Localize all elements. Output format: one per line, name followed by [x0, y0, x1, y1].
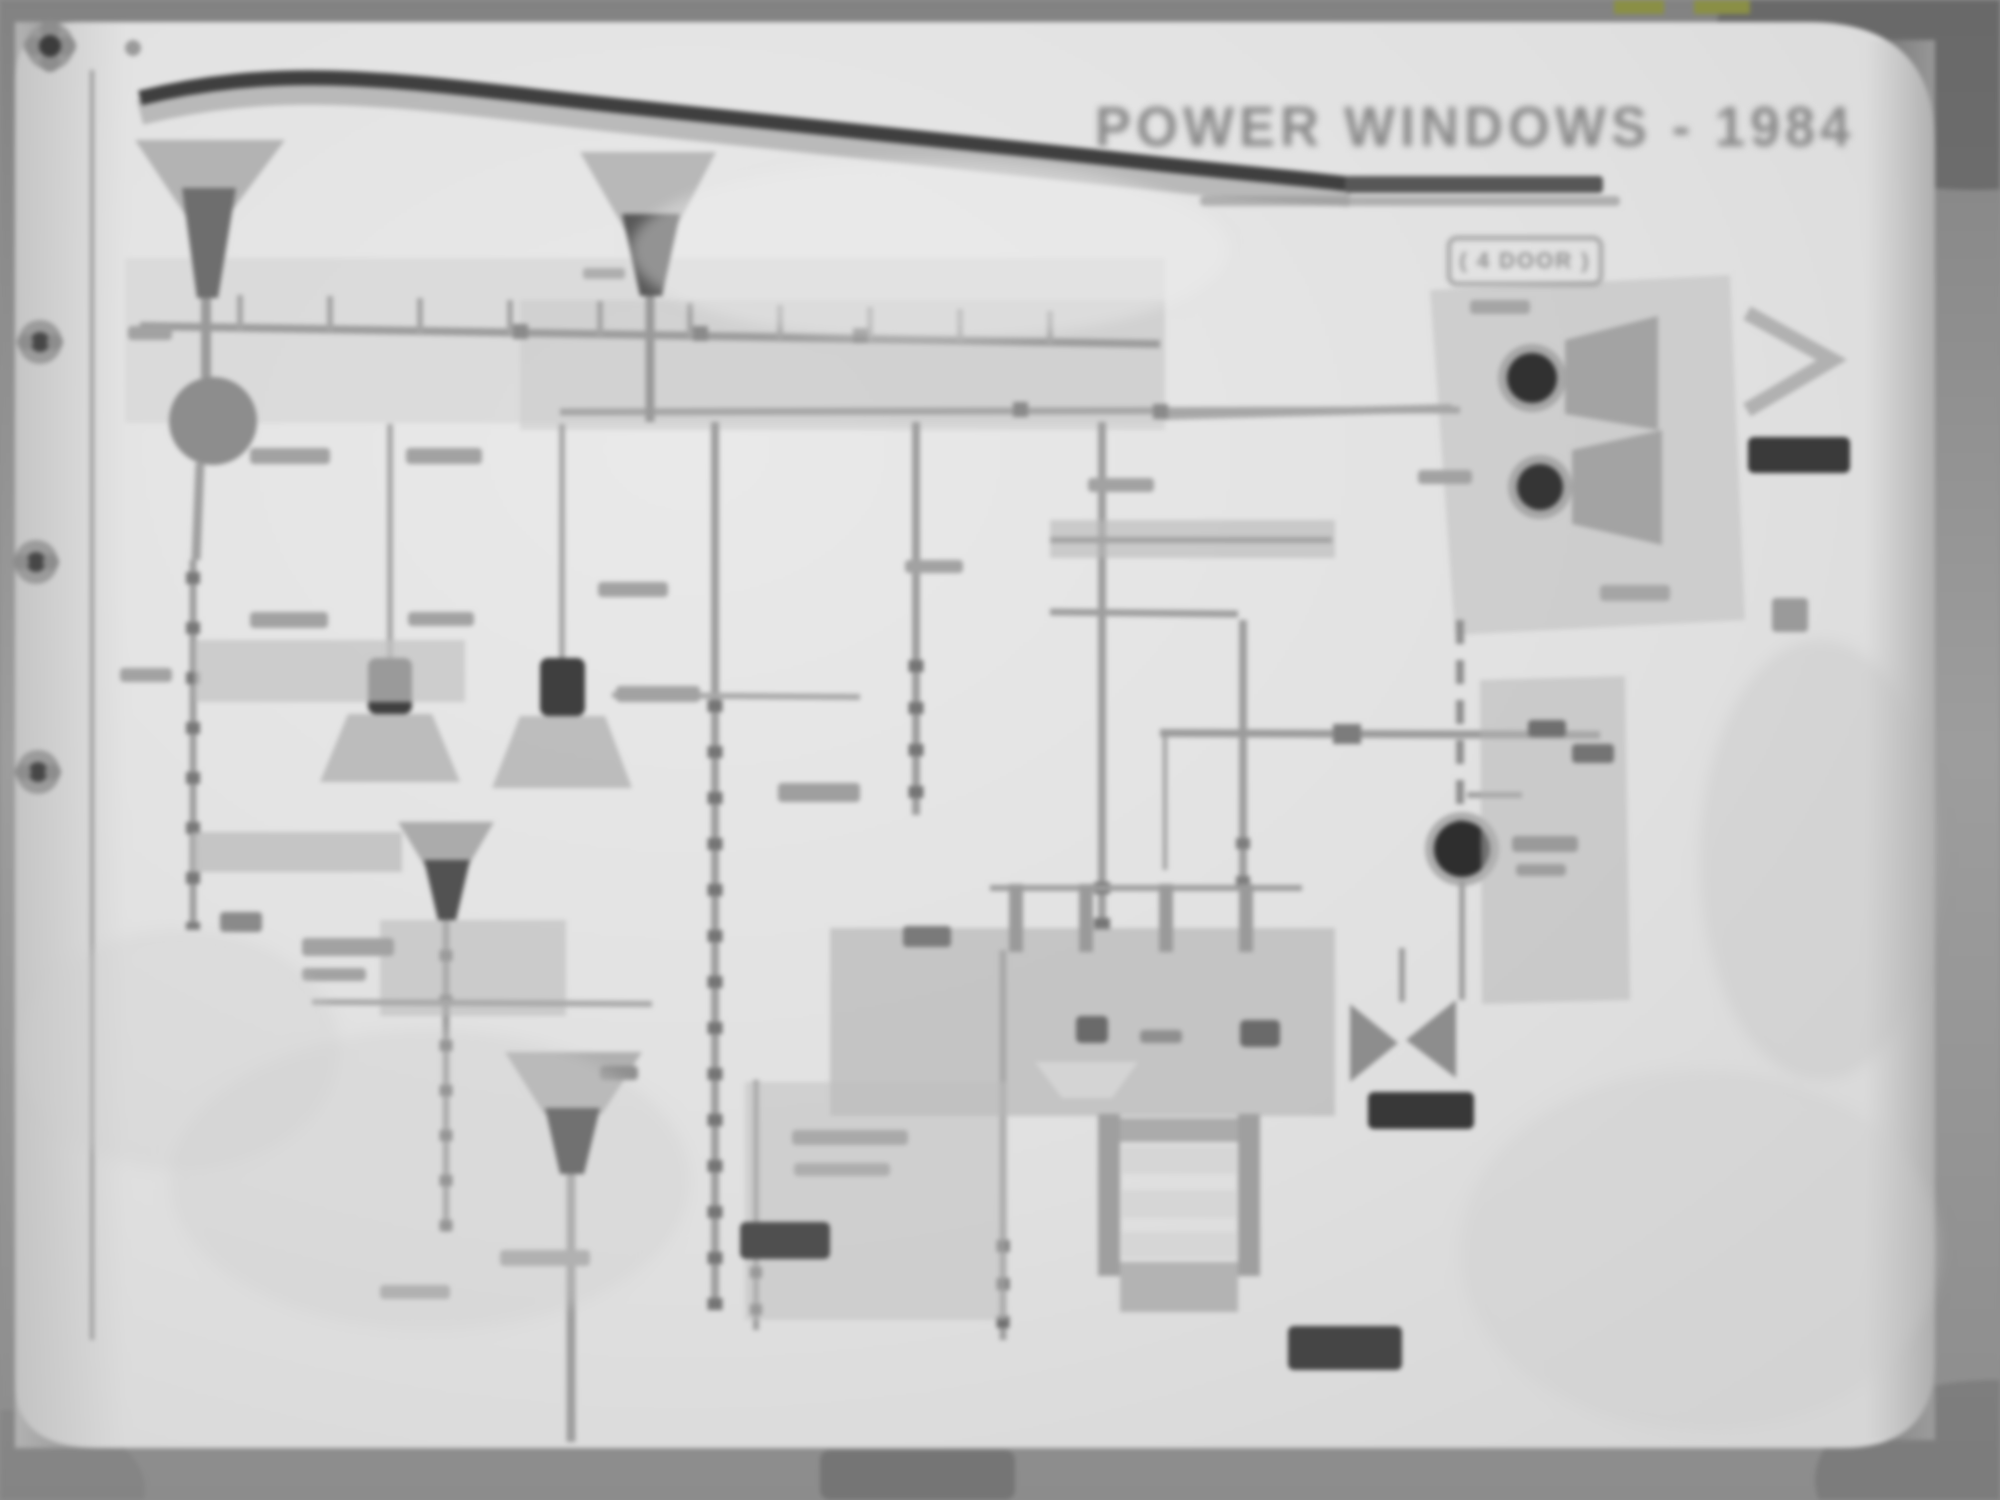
door-count-badge: ( 4 DOOR )	[1447, 236, 1603, 286]
title-underline-echo	[1200, 196, 1620, 206]
label-smudge	[792, 1130, 908, 1145]
label-smudge	[794, 1163, 890, 1176]
connector-dot-icon	[1507, 353, 1557, 403]
label-smudge	[1600, 585, 1670, 601]
label-smudge	[1512, 836, 1578, 852]
connector-block-bar	[1748, 437, 1850, 473]
page-margin-strip	[15, 22, 127, 1448]
label-smudge	[1516, 864, 1566, 876]
title-underline	[1345, 176, 1603, 193]
switch-knob	[1240, 1020, 1280, 1047]
wiring-diagram-photo: POWER WINDOWS - 1984 ( 4 DOOR )	[0, 0, 2000, 1500]
diagram-art	[0, 0, 2000, 1500]
label-smudge	[1470, 300, 1530, 314]
connector-dark-tip	[540, 658, 585, 716]
connector-block-bar	[1368, 1092, 1474, 1129]
label-smudge	[1572, 744, 1614, 763]
switch-knob	[1076, 1016, 1108, 1043]
label-smudge	[1772, 598, 1808, 632]
label-smudge	[1140, 1030, 1182, 1043]
connector-block-bar	[1288, 1326, 1402, 1370]
connector-block-bar	[740, 1222, 830, 1259]
connector-dot-icon	[1517, 464, 1563, 510]
label-smudge	[1528, 720, 1566, 737]
shadow-under-page	[820, 1450, 1015, 1500]
grommet-circle	[169, 377, 257, 465]
diagram-title: POWER WINDOWS - 1984	[1095, 94, 1655, 159]
